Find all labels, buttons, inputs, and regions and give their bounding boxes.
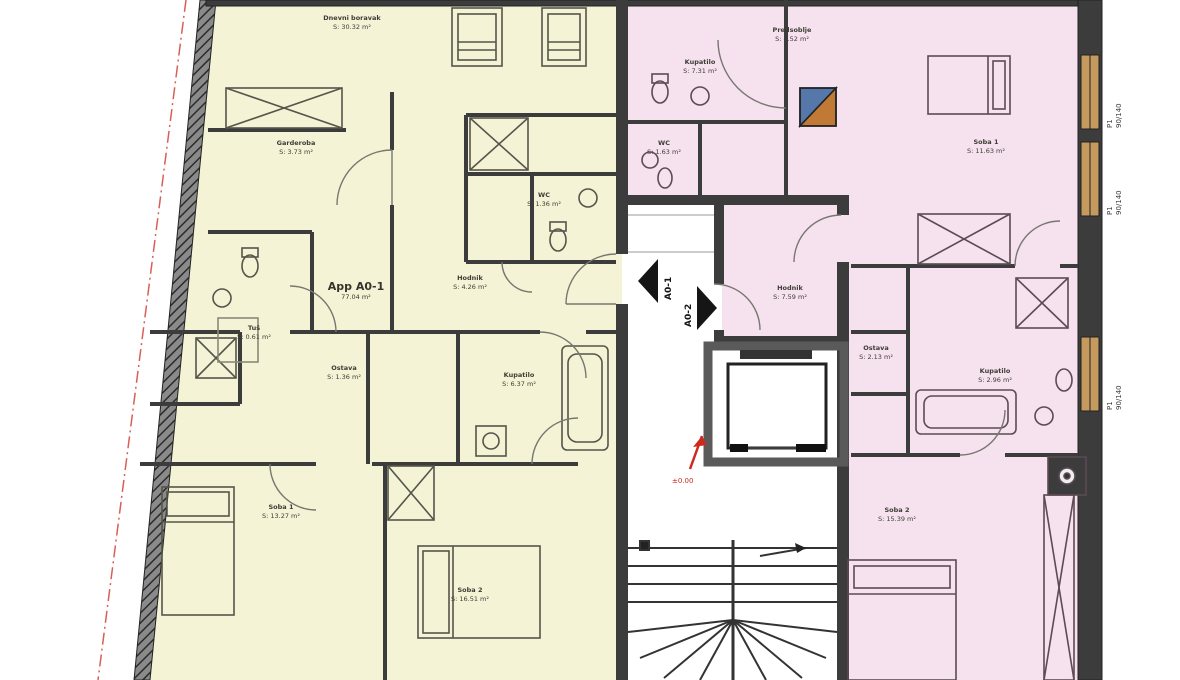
boiler-icon xyxy=(1048,457,1086,495)
ventilation-shaft-icon xyxy=(800,88,836,126)
entrance-arrow-a0-1-label: A0-1 xyxy=(664,277,674,300)
window-tag-label: P1 xyxy=(1106,119,1114,128)
entrance-arrow-a0-2-label: A0-2 xyxy=(684,304,694,327)
window-tag-size: 90/140 xyxy=(1115,385,1123,410)
elevator-shaft xyxy=(708,346,844,462)
elevation-marker-text: ±0.00 xyxy=(672,477,693,485)
floor-plan-canvas: A0-1 A0-2 ±0.00 P1 90/140 P1 90/140 P1 9… xyxy=(0,0,1180,680)
window-tag-size: 90/140 xyxy=(1115,103,1123,128)
window-tag-label: P1 xyxy=(1106,206,1114,215)
top-wall xyxy=(206,0,1100,6)
window-tags: P1 90/140 P1 90/140 P1 90/140 xyxy=(1106,103,1123,410)
floor-plan-drawing: A0-1 A0-2 ±0.00 P1 90/140 P1 90/140 P1 9… xyxy=(0,0,1180,680)
window-tag-label: P1 xyxy=(1106,401,1114,410)
window-tag-size: 90/140 xyxy=(1115,190,1123,215)
